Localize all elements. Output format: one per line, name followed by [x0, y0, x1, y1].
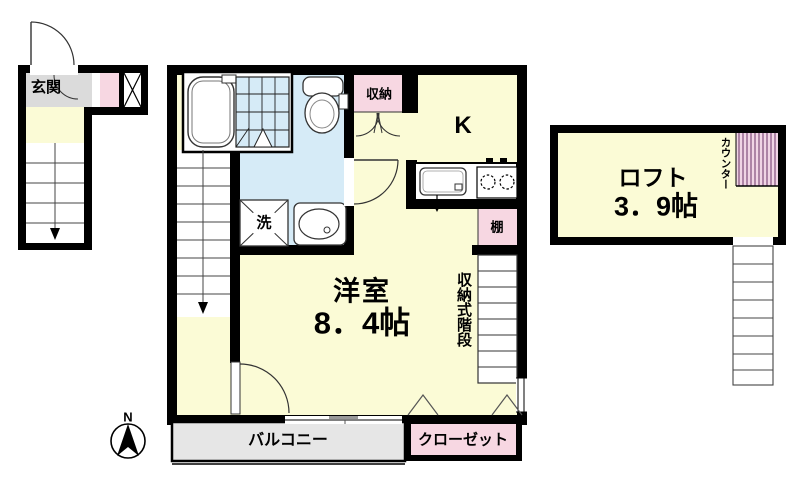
room-name-label: 洋室 [333, 279, 391, 306]
stove-icon [477, 167, 517, 198]
storage-stairs-label: 収納式階段 [456, 272, 471, 347]
bath-faucet-icon [222, 75, 236, 83]
sink-faucet-icon [455, 184, 462, 190]
entrance-storage [100, 73, 119, 107]
sink-icon [420, 168, 466, 195]
storage-right-wall [402, 73, 418, 113]
compass-north-label: N [123, 411, 132, 424]
loft-ladder [733, 246, 773, 385]
under-shelf-wall [472, 245, 527, 255]
stairs-divider-wall [230, 150, 240, 363]
balcony-label: バルコニー [248, 433, 328, 449]
meter-box [92, 73, 100, 107]
floorplan-page: 玄関 収納 K 棚 洗 洋室 8．4帖 収納式階段 ロフト 3．9帖 カウンター… [0, 0, 800, 485]
balcony-sliding-door [285, 416, 402, 424]
storage-label: 収納 [366, 88, 392, 101]
side-window [516, 378, 527, 412]
kitchen-label: K [454, 114, 471, 138]
bathtub-icon [188, 77, 234, 147]
washbasin-icon [294, 203, 346, 245]
room-size-label: 8．4帖 [314, 308, 410, 339]
entrance-landing-floor [26, 107, 84, 143]
loft-name-label: ロフト [619, 167, 688, 190]
floorplan-drawing [0, 0, 800, 485]
laundry-label: 洗 [256, 216, 271, 231]
stove-knob-left [486, 158, 493, 163]
counter-label: カウンター [720, 137, 731, 190]
bath-unit [183, 72, 292, 152]
entrance-label: 玄関 [31, 80, 61, 95]
loft-counter [736, 133, 778, 186]
closet-label: クローゼット [418, 433, 508, 448]
compass-icon [111, 424, 145, 458]
loft-size-label: 3．9帖 [614, 194, 698, 221]
stove-knob-right [500, 158, 507, 163]
under-counter-wall [406, 200, 527, 209]
shelf-label: 棚 [490, 221, 503, 234]
loft-ladder-opening [733, 237, 773, 246]
storage-staircase [478, 255, 517, 383]
